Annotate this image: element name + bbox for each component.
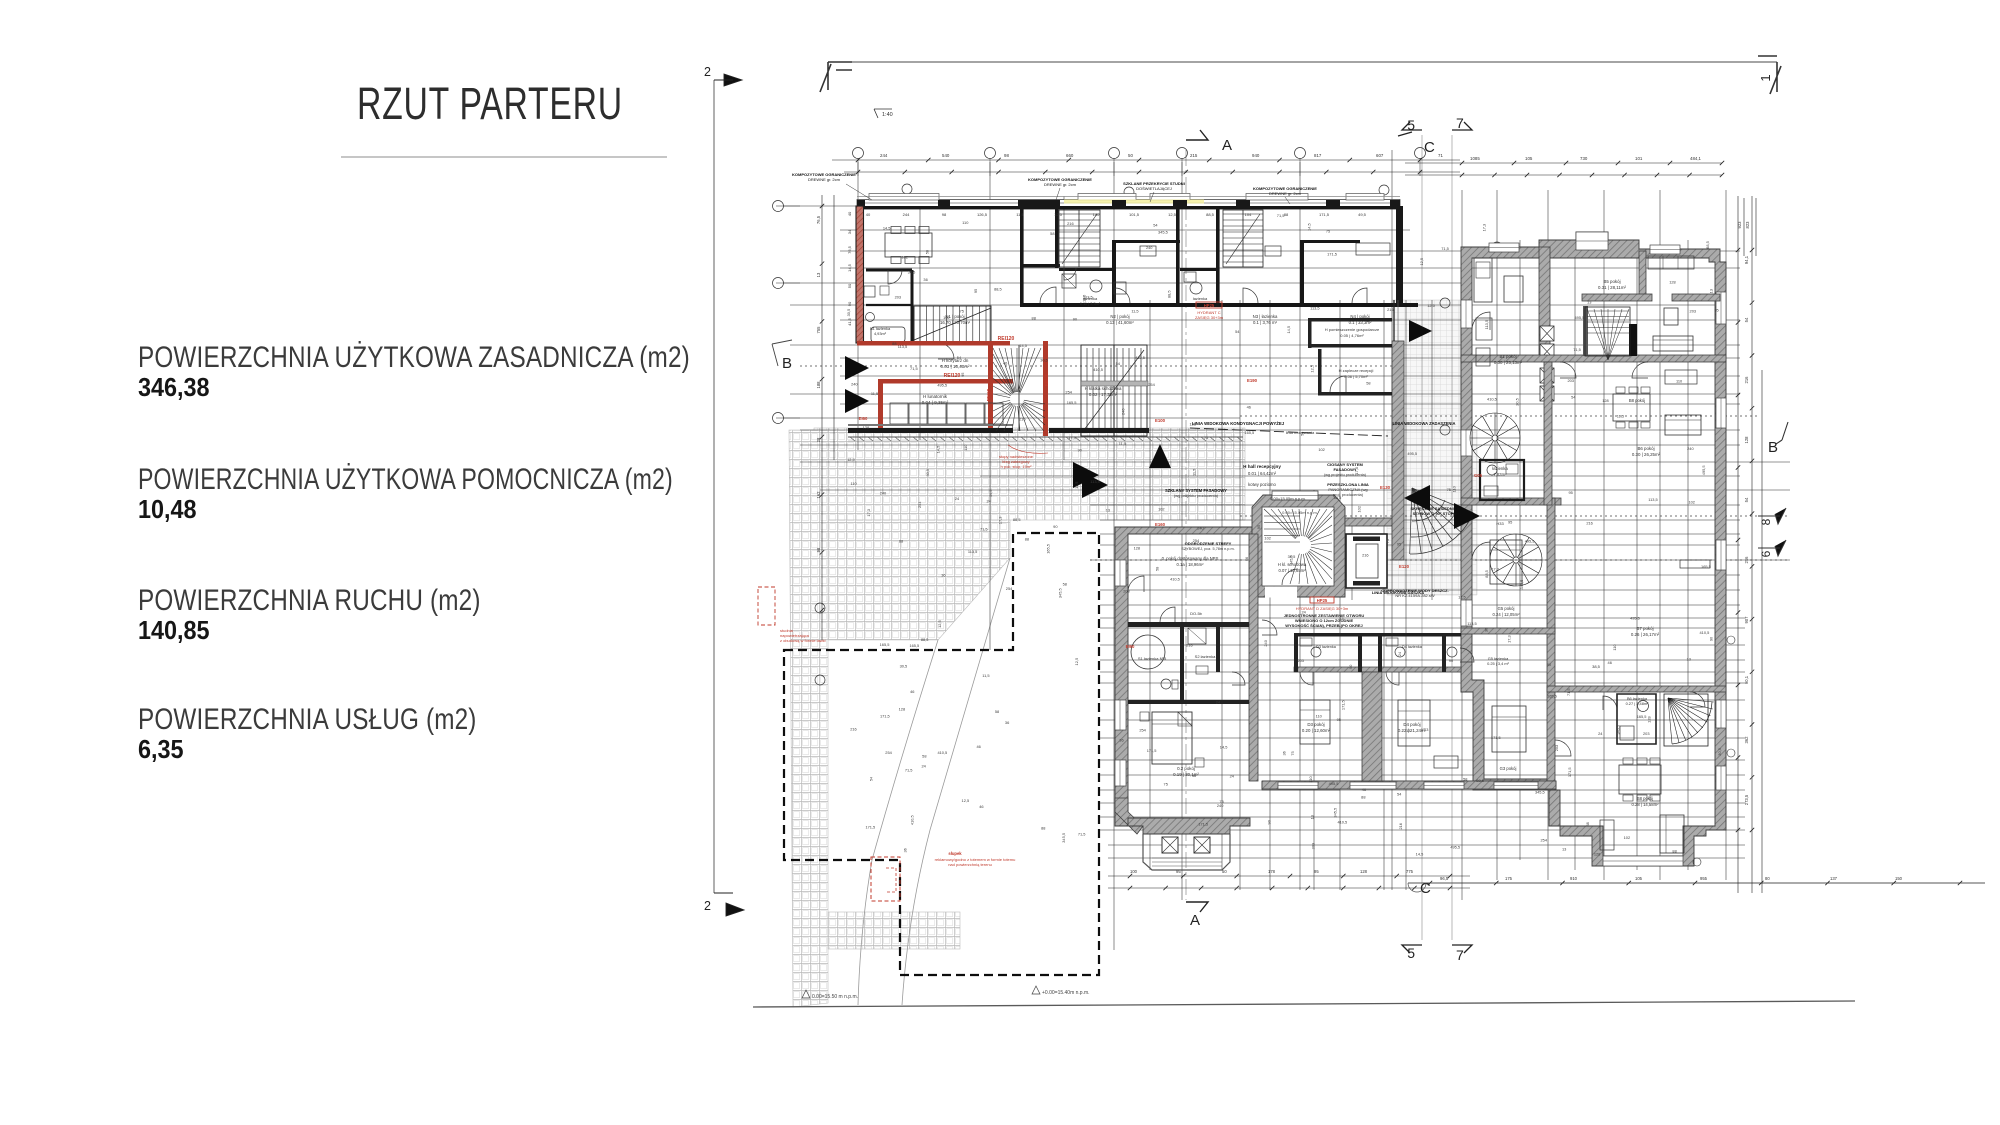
svg-text:75: 75 (1385, 539, 1390, 543)
svg-text:113,5: 113,5 (1310, 306, 1319, 311)
svg-text:+0.00=15.40m n.p.m.: +0.00=15.40m n.p.m. (1042, 990, 1090, 996)
svg-text:WYSOKOŚĆ ŚCIAN), PRZEB.(PO OKR: WYSOKOŚĆ ŚCIAN), PRZEB.(PO OKREJ (1285, 623, 1363, 628)
svg-text:36: 36 (903, 848, 908, 852)
svg-text:łazienka: łazienka (1193, 296, 1208, 301)
svg-text:244: 244 (880, 153, 888, 158)
svg-text:1:40: 1:40 (882, 112, 893, 118)
svg-text:58: 58 (1463, 776, 1467, 781)
svg-text:140: 140 (1093, 212, 1100, 217)
svg-text:46: 46 (1244, 557, 1249, 561)
svg-text:G05: G05 (1474, 473, 1483, 478)
svg-text:150: 150 (1895, 876, 1903, 881)
svg-text:58: 58 (925, 250, 930, 254)
svg-text:128: 128 (1744, 436, 1749, 444)
svg-text:B7 pokój: B7 pokój (1636, 626, 1653, 631)
svg-text:B6 pokój: B6 pokój (1637, 446, 1654, 451)
svg-text:102: 102 (1356, 506, 1361, 513)
svg-text:50: 50 (1128, 153, 1133, 158)
svg-text:17,3: 17,3 (1354, 467, 1359, 475)
svg-text:95: 95 (960, 373, 965, 377)
svg-text:101,5: 101,5 (1129, 212, 1140, 217)
svg-text:11,5: 11,5 (871, 391, 878, 396)
svg-text:7,63m²: 7,63m² (1493, 472, 1507, 477)
svg-text:101: 101 (1635, 156, 1643, 161)
svg-text:DREWNE gr. 2cm: DREWNE gr. 2cm (808, 177, 841, 182)
svg-text:8: 8 (1759, 518, 1773, 525)
svg-text:88,5: 88,5 (1013, 517, 1021, 522)
svg-text:126,5: 126,5 (977, 212, 988, 217)
svg-text:71,5: 71,5 (910, 366, 918, 371)
svg-text:z obudową w formie ławki: z obudową w formie ławki (780, 638, 826, 643)
svg-text:B5 pokój: B5 pokój (1603, 279, 1620, 284)
svg-text:EI60: EI60 (1126, 644, 1135, 649)
svg-text:0.1 | 3,76 m²: 0.1 | 3,76 m² (1253, 320, 1278, 325)
svg-text:162: 162 (816, 491, 821, 499)
svg-text:110: 110 (1612, 644, 1617, 651)
svg-text:54: 54 (1116, 361, 1121, 366)
svg-text:14,5: 14,5 (1416, 852, 1424, 857)
svg-text:LINIA WIDOKOWA ZADASZENIA: LINIA WIDOKOWA ZADASZENIA (1393, 421, 1456, 426)
svg-text:817: 817 (1314, 153, 1322, 158)
svg-text:DREWNE gr. 2cm: DREWNE gr. 2cm (1044, 182, 1077, 187)
svg-text:495,5: 495,5 (1407, 451, 1417, 456)
svg-text:100: 100 (1130, 869, 1138, 874)
svg-text:216: 216 (1398, 823, 1403, 830)
svg-text:EI60: EI60 (859, 416, 868, 421)
svg-text:90,1: 90,1 (1744, 675, 1749, 684)
svg-text:90: 90 (1073, 316, 1078, 321)
svg-text:495,5: 495,5 (1575, 315, 1585, 320)
svg-text:75: 75 (960, 308, 964, 313)
svg-text:30,5: 30,5 (1717, 748, 1722, 756)
svg-text:0.02 | 17,35m²: 0.02 | 17,35m² (1089, 392, 1118, 397)
svg-text:C: C (1420, 880, 1431, 897)
svg-text:254: 254 (1065, 390, 1072, 395)
svg-text:A: A (1190, 912, 1200, 929)
svg-text:12,5: 12,5 (937, 620, 942, 628)
svg-text:0.00=15.50 m n.p.m.: 0.00=15.50 m n.p.m. (812, 994, 858, 1000)
svg-text:12,5: 12,5 (847, 457, 855, 462)
svg-text:88: 88 (892, 341, 896, 346)
svg-text:12,5: 12,5 (1419, 258, 1424, 266)
svg-text:12,5: 12,5 (962, 798, 970, 803)
svg-text:0.31 | 28,11m²: 0.31 | 28,11m² (1598, 285, 1626, 290)
svg-text:254: 254 (1006, 586, 1013, 591)
svg-text:216: 216 (1067, 221, 1074, 226)
svg-text:36: 36 (941, 572, 945, 577)
svg-text:254: 254 (1139, 728, 1146, 733)
svg-text:0.20 | 12,60m²: 0.20 | 12,60m² (1302, 728, 1331, 733)
svg-text:17,3: 17,3 (1068, 435, 1076, 440)
svg-text:495,5: 495,5 (1525, 538, 1535, 543)
svg-text:203: 203 (1643, 731, 1650, 736)
svg-text:46: 46 (1362, 787, 1366, 792)
svg-text:105: 105 (1525, 156, 1533, 161)
svg-text:203: 203 (1297, 658, 1304, 663)
svg-text:171,5: 171,5 (1319, 212, 1330, 217)
svg-text:5: 5 (1407, 945, 1415, 961)
svg-text:95: 95 (1714, 307, 1718, 312)
svg-text:203: 203 (1690, 308, 1697, 313)
svg-text:88: 88 (1585, 822, 1590, 826)
svg-text:12,5: 12,5 (1427, 303, 1435, 308)
svg-text:410,5: 410,5 (1700, 630, 1710, 635)
svg-text:0.01 | 64,42m²: 0.01 | 64,42m² (1248, 471, 1277, 476)
svg-text:36: 36 (1005, 720, 1009, 725)
svg-text:171,5: 171,5 (1198, 822, 1208, 827)
svg-text:54: 54 (1235, 329, 1240, 334)
svg-text:95: 95 (1256, 525, 1261, 529)
svg-text:345,5: 345,5 (1289, 555, 1294, 565)
svg-text:7: 7 (1456, 947, 1464, 963)
svg-text:345,5: 345,5 (1158, 230, 1168, 235)
svg-text:NR KZ.4159A.282.sW: NR KZ.4159A.282.sW (1395, 593, 1435, 598)
svg-text:165,5: 165,5 (880, 642, 890, 647)
svg-text:71: 71 (1438, 153, 1443, 158)
svg-text:REI120: REI120 (944, 373, 961, 379)
svg-text:165,5: 165,5 (1046, 544, 1051, 554)
svg-text:215: 215 (1190, 153, 1198, 158)
svg-text:17,3: 17,3 (1481, 224, 1486, 232)
svg-text:95: 95 (1508, 519, 1512, 524)
svg-text:71,5: 71,5 (1566, 688, 1571, 696)
svg-text:0.13 | 41,60m²: 0.13 | 41,60m² (1106, 320, 1134, 325)
svg-text:E160: E160 (1155, 522, 1166, 527)
svg-text:58: 58 (995, 709, 999, 714)
svg-text:24: 24 (1598, 731, 1603, 736)
svg-text:46: 46 (976, 744, 980, 749)
svg-text:DREWNE gr. 2cm: DREWNE gr. 2cm (1269, 191, 1302, 196)
svg-text:30,5: 30,5 (900, 663, 908, 668)
svg-text:17,3: 17,3 (866, 509, 871, 517)
svg-text:88,5: 88,5 (994, 287, 1002, 292)
svg-text:0.03 | 10,40m²: 0.03 | 10,40m² (941, 364, 970, 369)
svg-text:495,5: 495,5 (1450, 845, 1460, 850)
svg-text:24: 24 (1397, 651, 1402, 656)
svg-text:362: 362 (1744, 736, 1749, 744)
svg-text:254: 254 (885, 750, 892, 755)
svg-text:54: 54 (1397, 792, 1402, 797)
svg-text:203: 203 (1123, 589, 1130, 594)
svg-text:128: 128 (1360, 869, 1368, 874)
svg-text:76,5: 76,5 (847, 245, 852, 254)
svg-text:113,5: 113,5 (1467, 621, 1476, 626)
svg-text:98: 98 (1004, 153, 1009, 158)
svg-text:113,5: 113,5 (1090, 479, 1099, 484)
svg-text:410,5: 410,5 (1337, 819, 1347, 824)
svg-text:128: 128 (1190, 421, 1197, 426)
svg-text:171,5: 171,5 (1340, 700, 1345, 710)
svg-text:14,5: 14,5 (1307, 223, 1312, 231)
svg-text:345,5: 345,5 (1535, 790, 1545, 795)
svg-text:49,5: 49,5 (1358, 212, 1367, 217)
svg-text:88,5: 88,5 (921, 637, 929, 642)
svg-text:165,5: 165,5 (1067, 400, 1077, 405)
svg-text:12,5: 12,5 (1168, 212, 1177, 217)
svg-text:955: 955 (1700, 876, 1708, 881)
svg-text:171,5: 171,5 (1147, 748, 1157, 753)
svg-text:54: 54 (1571, 395, 1576, 400)
svg-text:14,5: 14,5 (988, 490, 993, 498)
svg-text:71,5: 71,5 (980, 526, 988, 531)
svg-text:46: 46 (1247, 404, 1251, 409)
svg-text:75: 75 (1290, 751, 1295, 755)
svg-text:254: 254 (1541, 838, 1548, 843)
svg-text:46: 46 (1003, 361, 1007, 366)
svg-text:730: 730 (1580, 156, 1588, 161)
svg-text:88: 88 (1032, 316, 1036, 321)
svg-text:88,5: 88,5 (1705, 241, 1710, 249)
svg-text:273,5: 273,5 (1744, 794, 1749, 805)
svg-text:128: 128 (1594, 852, 1601, 857)
svg-text:36: 36 (1192, 773, 1196, 778)
svg-text:0.1a | 18,96m²: 0.1a | 18,96m² (1177, 562, 1205, 567)
svg-text:216: 216 (1744, 376, 1749, 384)
svg-text:345,5: 345,5 (1519, 580, 1524, 590)
svg-text:B: B (1768, 439, 1778, 456)
svg-text:410,5: 410,5 (1135, 355, 1145, 360)
svg-text:S2 łazienka: S2 łazienka (1195, 654, 1216, 659)
svg-text:71,5: 71,5 (1573, 347, 1581, 352)
svg-text:H33: H33 (1496, 521, 1504, 526)
svg-text:95: 95 (1568, 490, 1572, 495)
svg-text:0.30 | 26,25m²: 0.30 | 26,25m² (1632, 452, 1661, 457)
svg-text:11,5: 11,5 (1617, 413, 1624, 418)
svg-text:nad powierzchnią terenu: nad powierzchnią terenu (948, 862, 992, 867)
svg-text:165,5: 165,5 (909, 643, 919, 648)
svg-text:D3 łazienka: D3 łazienka (1316, 645, 1337, 649)
svg-text:41,5: 41,5 (847, 317, 852, 326)
svg-text:B8 pokój: B8 pokój (1629, 398, 1645, 403)
svg-text:DO-5b: DO-5b (1190, 611, 1203, 616)
svg-text:171,5: 171,5 (1327, 251, 1337, 256)
svg-text:102: 102 (902, 254, 909, 259)
svg-text:D4 pokój: D4 pokój (1403, 722, 1420, 727)
svg-text:128: 128 (1134, 545, 1141, 550)
svg-text:13: 13 (1406, 728, 1410, 733)
svg-text:165,5: 165,5 (1701, 564, 1711, 569)
svg-text:88: 88 (1672, 848, 1676, 853)
svg-text:244: 244 (903, 212, 910, 217)
svg-text:7: 7 (1456, 115, 1464, 131)
svg-text:88: 88 (1361, 794, 1365, 799)
svg-text:B8 pokój: B8 pokój (1637, 796, 1653, 801)
svg-text:ZASIĘG 30+3m: ZASIĘG 30+3m (1195, 315, 1224, 320)
svg-text:11,5: 11,5 (1191, 469, 1196, 476)
svg-text:88,5: 88,5 (1206, 212, 1215, 217)
svg-text:128: 128 (1647, 716, 1652, 723)
svg-text:495,5: 495,5 (1701, 465, 1706, 475)
svg-text:H hall recepcyjny: H hall recepcyjny (1243, 464, 1281, 469)
svg-text:410,5: 410,5 (1487, 397, 1497, 402)
svg-text:16,70 | 20,70m²: 16,70 | 20,70m² (940, 320, 971, 325)
svg-text:240: 240 (1687, 446, 1694, 451)
svg-text:B1 pokój: B1 pokój (1499, 354, 1516, 359)
svg-text:71,5: 71,5 (905, 767, 913, 772)
svg-text:D4 łazienka: D4 łazienka (1402, 645, 1423, 649)
svg-text:0.28 | 14,58m²: 0.28 | 14,58m² (1632, 802, 1660, 807)
svg-text:0. pokój dostosowany dla NPS: 0. pokój dostosowany dla NPS (1162, 556, 1219, 561)
svg-text:113,5: 113,5 (968, 549, 977, 554)
svg-text:540: 540 (942, 153, 950, 158)
svg-text:216: 216 (1019, 416, 1026, 421)
svg-text:17,3: 17,3 (1491, 566, 1499, 571)
svg-text:216: 216 (1186, 642, 1193, 647)
svg-text:823: 823 (1745, 221, 1750, 229)
svg-text:38,5: 38,5 (1592, 664, 1601, 669)
svg-text:h pok. stop. 19m²: h pok. stop. 19m² (1001, 464, 1033, 469)
svg-text:71,5: 71,5 (1441, 246, 1449, 251)
svg-text:14,5: 14,5 (935, 446, 940, 454)
svg-text:216: 216 (1744, 556, 1749, 564)
svg-text:203: 203 (1554, 745, 1559, 752)
svg-text:0.07 | 16,65m²: 0.07 | 16,65m² (1279, 568, 1307, 573)
svg-text:(wg projektu producenta): (wg projektu producenta) (1174, 493, 1219, 498)
svg-text:17,3: 17,3 (998, 517, 1003, 525)
svg-text:11,5: 11,5 (1131, 308, 1138, 313)
svg-text:13: 13 (1309, 815, 1314, 819)
svg-text:88,5: 88,5 (1334, 495, 1342, 500)
svg-text:46: 46 (910, 689, 914, 694)
svg-text:0.30 | 25,13m²: 0.30 | 25,13m² (1494, 360, 1523, 365)
svg-text:88: 88 (1025, 537, 1029, 542)
svg-text:410,5: 410,5 (1170, 576, 1180, 581)
svg-text:410,5: 410,5 (1093, 367, 1103, 372)
svg-text:58: 58 (1063, 582, 1067, 587)
svg-text:34: 34 (847, 229, 852, 234)
svg-text:102: 102 (1264, 535, 1271, 540)
svg-text:N3 | łazienka: N3 | łazienka (1253, 314, 1278, 319)
svg-text:90: 90 (1348, 664, 1353, 669)
svg-text:14,5: 14,5 (1220, 744, 1228, 749)
svg-text:165,5: 165,5 (1637, 714, 1647, 719)
svg-text:110: 110 (1316, 713, 1323, 718)
svg-text:11,5: 11,5 (1016, 212, 1024, 217)
svg-text:0.05 | 4,76m²: 0.05 | 4,76m² (1340, 333, 1364, 338)
svg-text:75: 75 (1326, 228, 1330, 233)
svg-text:113,5: 113,5 (1648, 497, 1657, 502)
svg-text:495,5: 495,5 (1630, 616, 1640, 621)
svg-text:128: 128 (899, 707, 906, 712)
svg-text:98: 98 (816, 547, 821, 552)
svg-text:923: 923 (1737, 221, 1742, 229)
svg-text:910: 910 (1570, 876, 1578, 881)
svg-text:128: 128 (1669, 280, 1676, 285)
svg-text:345,5: 345,5 (1333, 808, 1338, 818)
svg-text:345,5: 345,5 (1061, 833, 1066, 843)
svg-text:13: 13 (1562, 846, 1566, 851)
svg-text:188: 188 (816, 381, 821, 389)
svg-text:171,5: 171,5 (1567, 767, 1572, 777)
svg-text:N2 | pokój: N2 | pokój (1110, 314, 1129, 319)
svg-text:128: 128 (1602, 398, 1609, 403)
svg-text:240: 240 (851, 381, 858, 386)
svg-text:słupek: słupek (948, 851, 962, 856)
svg-text:110: 110 (1308, 776, 1313, 783)
svg-text:90: 90 (1267, 819, 1272, 824)
svg-text:36: 36 (1483, 628, 1488, 632)
svg-text:30,5: 30,5 (1040, 357, 1048, 362)
svg-text:75: 75 (1164, 781, 1168, 786)
svg-text:13: 13 (816, 272, 821, 277)
svg-text:88: 88 (1284, 212, 1289, 217)
svg-text:12,5: 12,5 (1458, 594, 1466, 599)
svg-text:410,5: 410,5 (910, 815, 915, 825)
svg-text:HP25: HP25 (1204, 303, 1215, 308)
svg-text:240: 240 (1121, 408, 1126, 415)
svg-text:13: 13 (1587, 299, 1591, 304)
svg-text:484,1: 484,1 (1690, 156, 1702, 161)
svg-text:410,5: 410,5 (937, 750, 947, 755)
svg-text:B: B (782, 355, 792, 372)
svg-text:H klatka schodowa: H klatka schodowa (1085, 386, 1122, 391)
svg-text:E120: E120 (1399, 564, 1410, 569)
svg-text:203: 203 (1567, 378, 1574, 383)
svg-text:G3 pokój: G3 pokój (1500, 766, 1517, 771)
svg-text:607: 607 (1376, 153, 1384, 158)
svg-text:102: 102 (1624, 835, 1631, 840)
svg-text:12,5: 12,5 (1054, 212, 1063, 217)
svg-text:113,5: 113,5 (1484, 320, 1489, 329)
svg-text:90: 90 (847, 301, 852, 306)
svg-text:E190: E190 (1247, 378, 1258, 383)
svg-text:11,5: 11,5 (1082, 295, 1087, 302)
svg-text:102: 102 (1318, 447, 1325, 452)
svg-text:94,1: 94,1 (1744, 255, 1749, 264)
svg-text:24: 24 (922, 763, 927, 768)
svg-text:110: 110 (963, 444, 968, 451)
svg-text:88: 88 (899, 538, 903, 543)
svg-text:REI60: REI60 (1044, 373, 1049, 386)
svg-text:178: 178 (1268, 869, 1276, 874)
svg-text:17,3: 17,3 (1506, 635, 1511, 643)
svg-text:96,5: 96,5 (1440, 876, 1449, 881)
svg-text:54: 54 (868, 776, 873, 781)
svg-text:240: 240 (880, 491, 887, 496)
svg-text:13: 13 (1687, 656, 1691, 661)
svg-text:80: 80 (1765, 876, 1770, 881)
svg-text:203: 203 (895, 295, 902, 300)
svg-text:0.26 | 26,17m²: 0.26 | 26,17m² (1631, 632, 1660, 637)
svg-text:17,3: 17,3 (1421, 727, 1429, 732)
svg-text:171,5: 171,5 (865, 824, 875, 829)
svg-text:90: 90 (1053, 524, 1058, 529)
svg-text:755: 755 (816, 326, 821, 334)
svg-text:0.24 | 12,05m²: 0.24 | 12,05m² (1493, 612, 1521, 617)
svg-text:H pomieszczenie gospodarcze: H pomieszczenie gospodarcze (1325, 327, 1380, 332)
svg-text:G5 pokój: G5 pokój (1498, 606, 1515, 611)
svg-text:58: 58 (1366, 380, 1370, 385)
svg-text:28: 28 (816, 437, 821, 442)
svg-text:110: 110 (1452, 485, 1457, 492)
svg-text:58: 58 (1154, 567, 1159, 571)
svg-text:102: 102 (1158, 507, 1165, 512)
svg-text:36: 36 (1282, 751, 1287, 755)
svg-text:LINIA WIDOKOWA KONDYGNACJI POW: LINIA WIDOKOWA KONDYGNACJI POWYŻEJ (1192, 421, 1285, 426)
svg-text:105: 105 (1635, 876, 1643, 881)
svg-text:46: 46 (979, 804, 983, 809)
svg-text:12,5: 12,5 (1310, 365, 1315, 373)
svg-text:75: 75 (1219, 799, 1223, 804)
svg-text:88,5: 88,5 (1476, 778, 1484, 783)
svg-text:71,5: 71,5 (1277, 213, 1285, 218)
svg-text:171,5: 171,5 (880, 713, 890, 718)
svg-text:216: 216 (850, 726, 857, 731)
svg-text:S1 łazienka Nº5: S1 łazienka Nº5 (1138, 656, 1167, 661)
svg-text:254: 254 (917, 501, 922, 508)
svg-text:216: 216 (1586, 520, 1593, 525)
svg-text:907: 907 (1744, 616, 1749, 624)
